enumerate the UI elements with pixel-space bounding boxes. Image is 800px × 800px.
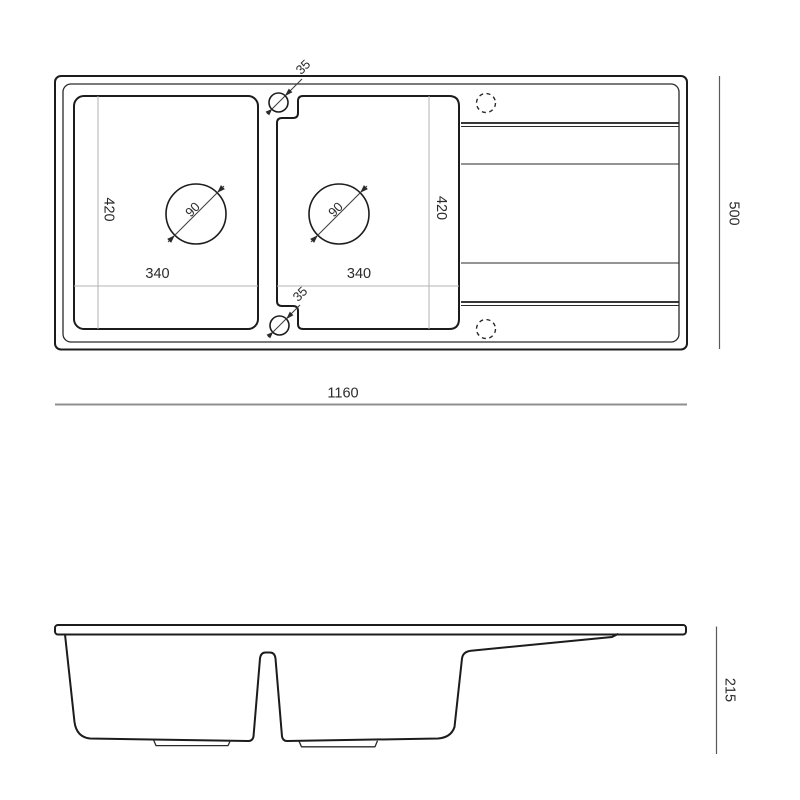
right-bowl-foot — [299, 741, 378, 747]
dim-left-drain: 90 — [167, 185, 225, 243]
dim-label-overall-height: 215 — [722, 678, 738, 702]
front-rim — [55, 625, 686, 635]
dim-overall-length: 1160 — [55, 386, 687, 405]
drainer-grooves — [461, 123, 679, 306]
dim-label-overall-length: 1160 — [327, 386, 358, 402]
dim-label-tap-hole-top: 35 — [293, 57, 314, 78]
dim-label-right-bowl-width: 340 — [347, 266, 371, 282]
optional-tap-hole-top — [477, 94, 496, 113]
arrowhead — [266, 109, 273, 116]
dim-label-right-bowl-depth: 420 — [433, 196, 449, 220]
top-view: 35 35 90 90 — [55, 57, 742, 405]
optional-tap-hole-bottom — [477, 320, 496, 339]
dim-tap-hole-top: 35 — [266, 57, 314, 116]
dim-label-right-drain: 90 — [325, 199, 346, 220]
dim-left-bowl-width: 340 — [74, 266, 258, 286]
dim-right-bowl-depth: 420 — [429, 96, 449, 329]
dim-right-bowl-width: 340 — [277, 266, 459, 286]
dim-label-overall-depth: 500 — [726, 201, 742, 225]
dim-label-tap-hole-bottom: 35 — [290, 284, 311, 305]
dim-right-drain: 90 — [310, 185, 368, 243]
dim-label-left-bowl-width: 340 — [145, 266, 169, 282]
dim-label-left-bowl-depth: 420 — [101, 197, 117, 221]
dim-overall-depth: 500 — [720, 76, 742, 349]
dim-label-left-drain: 90 — [182, 199, 203, 220]
technical-drawing: 35 35 90 90 — [0, 0, 800, 800]
drawing-canvas: 35 35 90 90 — [0, 0, 800, 800]
front-body-profile — [65, 634, 618, 741]
dim-left-bowl-depth: 420 — [98, 96, 117, 329]
sink-outer-edge — [55, 76, 687, 350]
arrowhead — [267, 332, 274, 339]
dim-overall-height: 215 — [717, 627, 738, 755]
front-view: 215 — [55, 625, 738, 754]
